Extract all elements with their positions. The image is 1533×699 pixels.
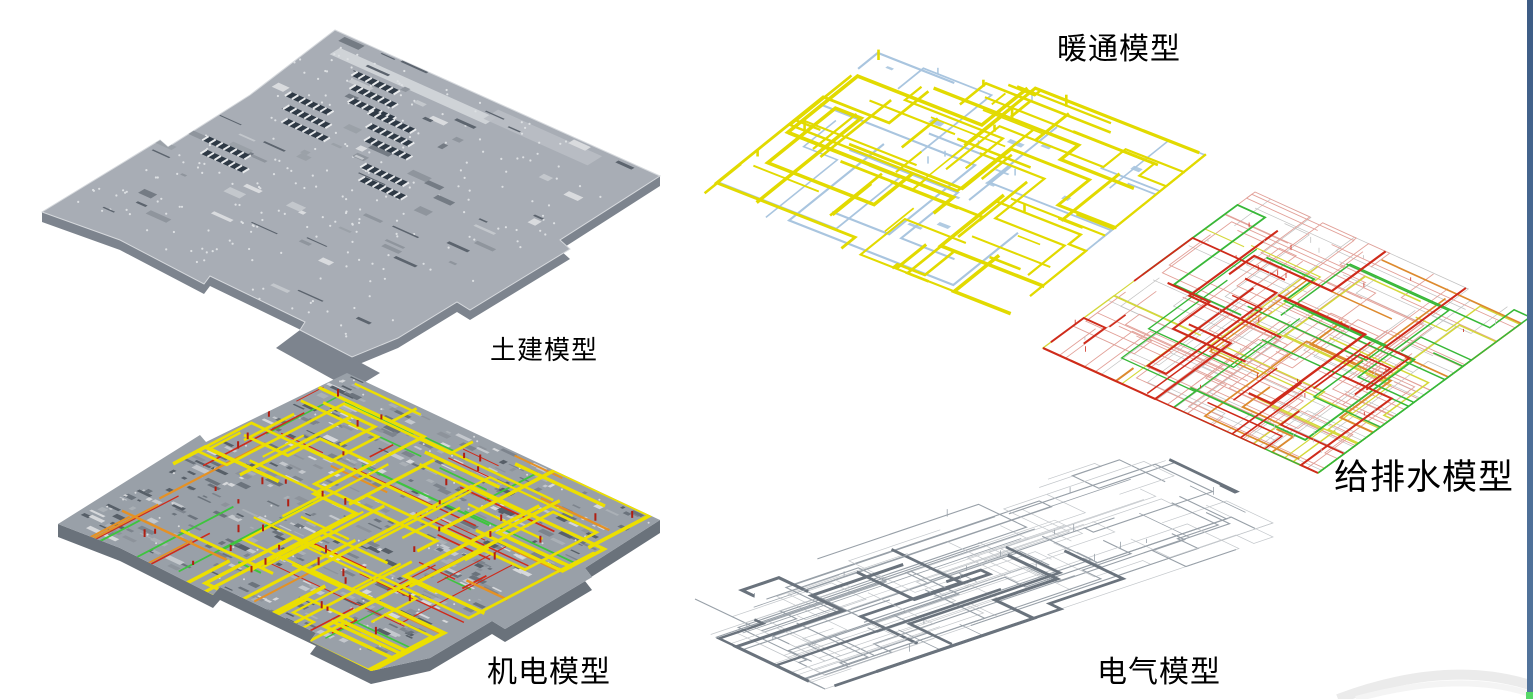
mep-model-graphic — [58, 373, 660, 684]
electrical-model-graphic — [695, 460, 1273, 690]
plumbing-model-graphic — [1043, 192, 1530, 473]
civil-model-label: 土建模型 — [490, 336, 598, 365]
models-canvas — [0, 0, 1533, 699]
decorative-swoosh — [1338, 675, 1533, 699]
mep-model-label: 机电模型 — [487, 656, 611, 689]
electrical-model-label: 电气模型 — [1097, 656, 1221, 689]
hvac-model-graphic — [705, 50, 1205, 313]
bim-models-overview: 土建模型 暖通模型 给排水模型 机电模型 电气模型 — [0, 0, 1533, 699]
plumbing-model-label: 给排水模型 — [1334, 459, 1514, 498]
hvac-model-label: 暖通模型 — [1057, 33, 1181, 66]
corner-green-accent — [1526, 692, 1533, 699]
right-edge-bar — [1527, 0, 1533, 699]
